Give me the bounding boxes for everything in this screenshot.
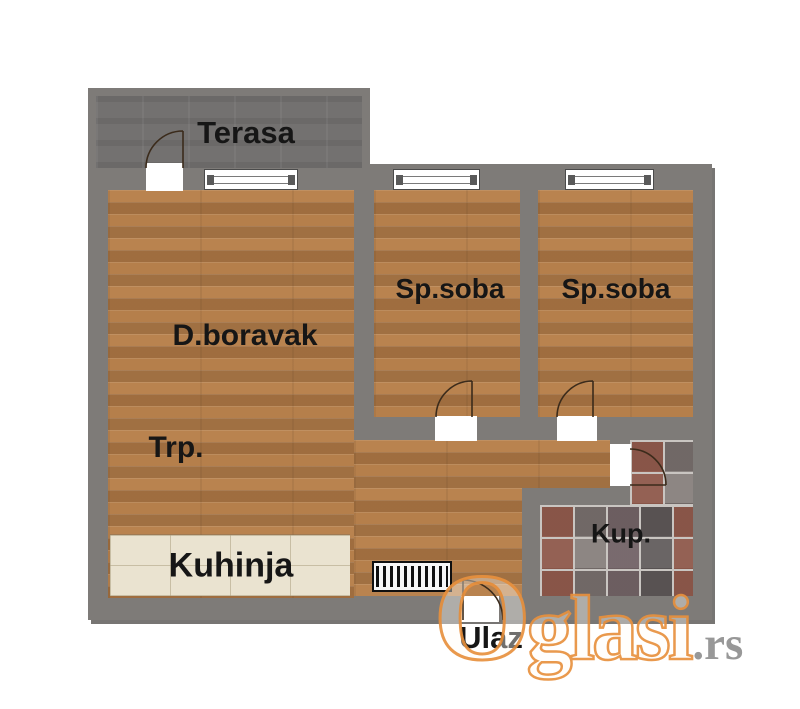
window-jamb [288, 175, 295, 185]
radiator-icon [372, 561, 452, 592]
terrace-label: Terasa [197, 115, 295, 151]
bedroom-1-window-icon [393, 169, 480, 190]
window-jamb [470, 175, 477, 185]
window-jamb [644, 175, 651, 185]
terrace-window-icon [204, 169, 298, 190]
window-jamb [568, 175, 575, 185]
bedroom-2-door-opening [557, 416, 597, 441]
bedroom-1-door-opening [435, 416, 477, 441]
window-jamb [396, 175, 403, 185]
dining-label: Trp. [148, 431, 203, 465]
window-pane [397, 176, 476, 184]
hallway-floor [354, 440, 610, 488]
bedroom-1-label: Sp.soba [396, 273, 505, 305]
watermark-tld: .rs [692, 617, 743, 671]
window-jamb [207, 175, 214, 185]
terrace-door-opening [146, 163, 183, 191]
floor-plan: Terasa D.boravak Sp.soba Sp.soba Trp. Ku… [0, 0, 800, 709]
bedroom-2-window-icon [565, 169, 654, 190]
entrance-door-opening [461, 596, 499, 622]
entrance-label: Ulaz [459, 620, 523, 656]
bathroom-label: Kup. [591, 519, 651, 550]
window-pane [208, 176, 294, 184]
kitchen-label: Kuhinja [169, 547, 294, 586]
window-pane [569, 176, 650, 184]
bathroom-door-opening [610, 444, 631, 486]
living-room-label: D.boravak [172, 319, 317, 353]
bathroom-lobby-floor [630, 440, 693, 505]
radiator-fins [376, 566, 448, 587]
bedroom-2-label: Sp.soba [562, 273, 671, 305]
